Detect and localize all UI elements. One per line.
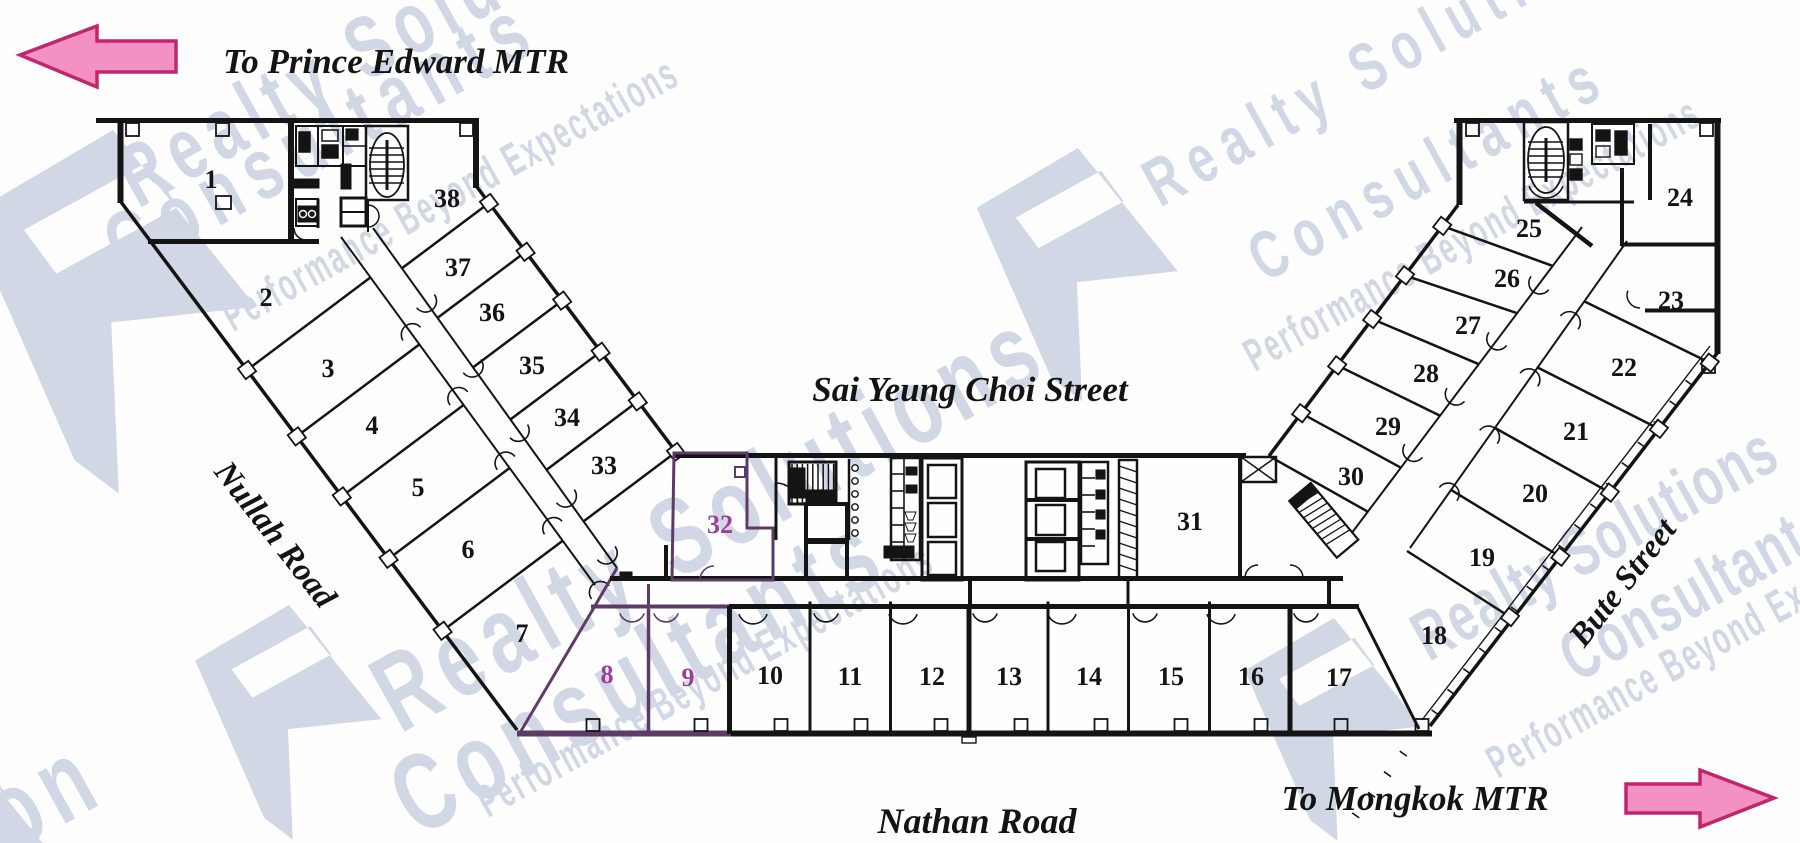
svg-text:To Mongkok MTR: To Mongkok MTR — [1281, 779, 1548, 818]
svg-text:35: 35 — [519, 351, 545, 380]
svg-text:15: 15 — [1158, 662, 1184, 691]
svg-text:Sai Yeung Choi Street: Sai Yeung Choi Street — [812, 370, 1129, 409]
svg-text:4: 4 — [366, 411, 379, 440]
svg-text:30: 30 — [1338, 462, 1364, 491]
svg-text:28: 28 — [1413, 359, 1439, 388]
svg-text:14: 14 — [1076, 662, 1102, 691]
svg-text:27: 27 — [1455, 311, 1481, 340]
svg-text:10: 10 — [757, 661, 783, 690]
svg-text:29: 29 — [1375, 412, 1401, 441]
svg-text:12: 12 — [919, 662, 945, 691]
svg-text:To Prince Edward MTR: To Prince Edward MTR — [223, 42, 569, 81]
svg-text:17: 17 — [1326, 663, 1352, 692]
svg-text:22: 22 — [1611, 353, 1637, 382]
svg-text:24: 24 — [1667, 183, 1693, 212]
svg-text:8: 8 — [601, 660, 614, 689]
svg-text:21: 21 — [1563, 417, 1589, 446]
svg-text:2: 2 — [260, 283, 273, 312]
svg-text:32: 32 — [707, 510, 733, 539]
svg-text:19: 19 — [1469, 543, 1495, 572]
svg-text:1: 1 — [205, 165, 218, 194]
svg-text:7: 7 — [516, 619, 529, 648]
svg-text:Nathan Road: Nathan Road — [876, 801, 1077, 841]
svg-text:16: 16 — [1238, 662, 1264, 691]
svg-text:37: 37 — [445, 253, 471, 282]
svg-text:20: 20 — [1522, 479, 1548, 508]
svg-text:18: 18 — [1421, 621, 1447, 650]
svg-text:31: 31 — [1177, 507, 1203, 536]
svg-text:23: 23 — [1658, 286, 1684, 315]
svg-text:33: 33 — [591, 451, 617, 480]
svg-text:13: 13 — [996, 662, 1022, 691]
svg-text:11: 11 — [838, 662, 863, 691]
svg-text:38: 38 — [434, 184, 460, 213]
svg-text:3: 3 — [322, 354, 335, 383]
svg-text:9: 9 — [682, 663, 695, 692]
svg-text:26: 26 — [1494, 264, 1520, 293]
svg-text:6: 6 — [462, 535, 475, 564]
svg-text:25: 25 — [1516, 214, 1542, 243]
svg-text:5: 5 — [412, 473, 425, 502]
svg-text:36: 36 — [479, 298, 505, 327]
svg-text:34: 34 — [554, 403, 580, 432]
